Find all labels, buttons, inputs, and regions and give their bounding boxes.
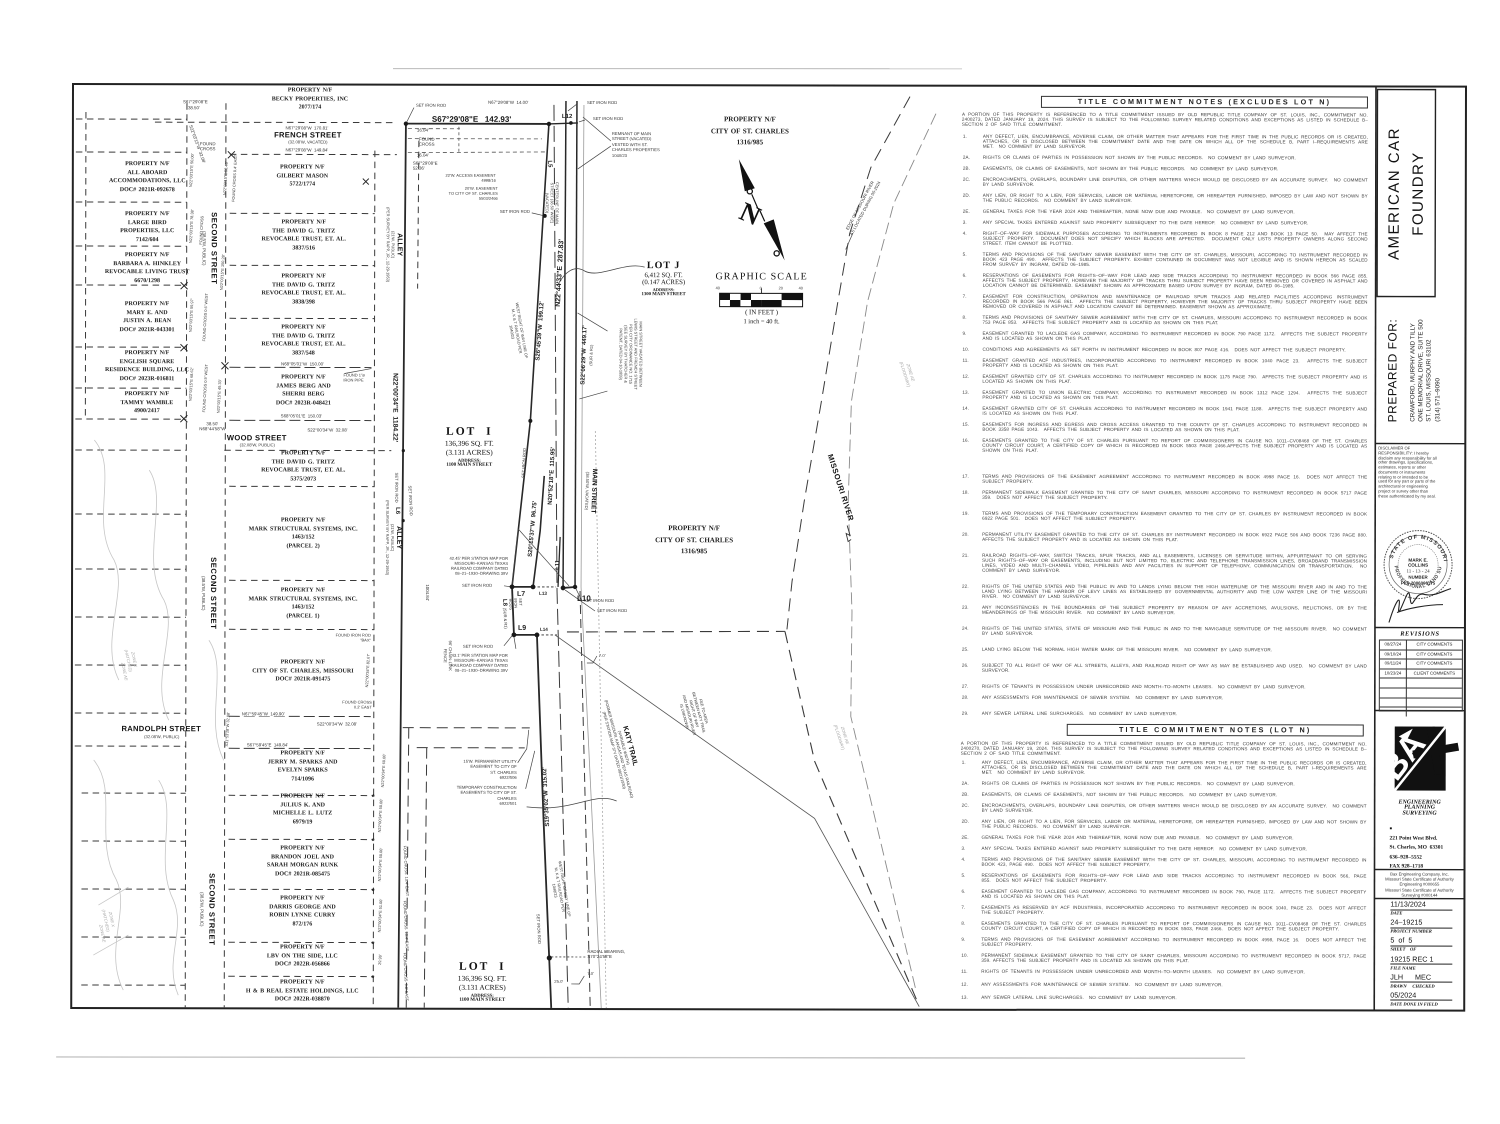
svg-text:MISSOURI RIVER: MISSOURI RIVER: [826, 453, 856, 522]
svg-text:N22°00'34"E 60.00': N22°00'34"E 60.00': [380, 753, 387, 787]
svg-text:S22°06'29"W 449.17': S22°06'29"W 449.17': [580, 325, 588, 385]
svg-text:N22°44'33"E 287.83': N22°44'33"E 287.83': [554, 239, 566, 307]
svg-text:SET IRON ROD: SET IRON ROD: [394, 473, 399, 503]
svg-text:PATENT, DATED 04-10-1859): PATENT, DATED 04-10-1859): [618, 328, 623, 380]
svg-text:(PER SURVEY BY RAPP, JR., 12-2: (PER SURVEY BY RAPP, JR., 12-29-1953): [386, 207, 391, 283]
svg-text:SECOND STREET: SECOND STREET: [209, 557, 218, 629]
svg-text:*: *: [372, 837, 376, 846]
svg-text:*: *: [371, 887, 375, 896]
svg-text:(PER SURVEY BY RAPP, JR., 12-2: (PER SURVEY BY RAPP, JR., 12-29-1953): [385, 500, 390, 576]
svg-text:N22°00'34"E 51.00': N22°00'34"E 51.00': [376, 898, 383, 932]
svg-text:1040/23: 1040/23: [508, 325, 515, 340]
svg-text:SET IRON ROD: SET IRON ROD: [520, 448, 527, 478]
svg-text:N20°52'18"E 115.95': N20°52'18"E 115.95': [548, 446, 557, 505]
svg-text:*: *: [371, 940, 375, 949]
svg-text:L6: L6: [394, 507, 400, 515]
svg-text:S20°15'37"W 96.75': S20°15'37"W 96.75': [528, 500, 539, 557]
svg-text:L11: L11: [555, 559, 562, 570]
svg-text:SECOND STREET: SECOND STREET: [207, 873, 216, 945]
svg-text:COLLINS: COLLINS: [1408, 563, 1428, 568]
svg-text:(38.50'W, VACATED): (38.50'W, VACATED): [584, 472, 590, 511]
svg-text:SET IRON ROD: SET IRON ROD: [407, 485, 414, 515]
svg-text:N22°00'34"E 1184.22': N22°00'34"E 1184.22': [391, 373, 399, 443]
svg-text:N22°03'15"E 58.48': N22°03'15"E 58.48': [222, 161, 229, 195]
svg-text:ALLEY: ALLEY: [395, 526, 402, 549]
svg-text:PLS-2006000175: PLS-2006000175: [1401, 581, 1436, 586]
svg-text:ALLEY: ALLEY: [396, 233, 403, 256]
svg-text:(VACATED): (VACATED): [545, 193, 550, 214]
svg-text:SET IRON ROD: SET IRON ROD: [536, 914, 543, 944]
svg-text:1004.84': 1004.84': [425, 584, 430, 601]
svg-text:SECOND STREET: SECOND STREET: [210, 212, 219, 284]
svg-text:29.99': 29.99': [377, 954, 383, 965]
svg-text:(38.5'W, PUBLIC): (38.5'W, PUBLIC): [199, 892, 204, 927]
svg-text:FOUND CROSS 0.4' EAST: FOUND CROSS 0.4' EAST: [231, 154, 239, 202]
svg-text:(38.5'W, PUBLIC): (38.5'W, PUBLIC): [201, 576, 206, 611]
svg-text:NUMBER: NUMBER: [1408, 575, 1428, 580]
svg-text:N22°00'34"E 50.00': N22°00'34"E 50.00': [377, 847, 384, 881]
svg-text:S31°53'28"W 32.08': S31°53'28"W 32.08': [224, 712, 231, 747]
svg-text:N22°03'15"E 49.33': N22°03'15"E 49.33': [215, 379, 222, 413]
svg-text:*: *: [372, 793, 376, 802]
svg-text:(SUR & R1): (SUR & R1): [588, 344, 594, 366]
svg-text:N22°00'34"E 50.00': N22°00'34"E 50.00': [377, 798, 384, 832]
svg-text:1040/23: 1040/23: [551, 883, 558, 898]
svg-text:N22°03'15"E 150.28': N22°03'15"E 150.28': [219, 254, 226, 290]
